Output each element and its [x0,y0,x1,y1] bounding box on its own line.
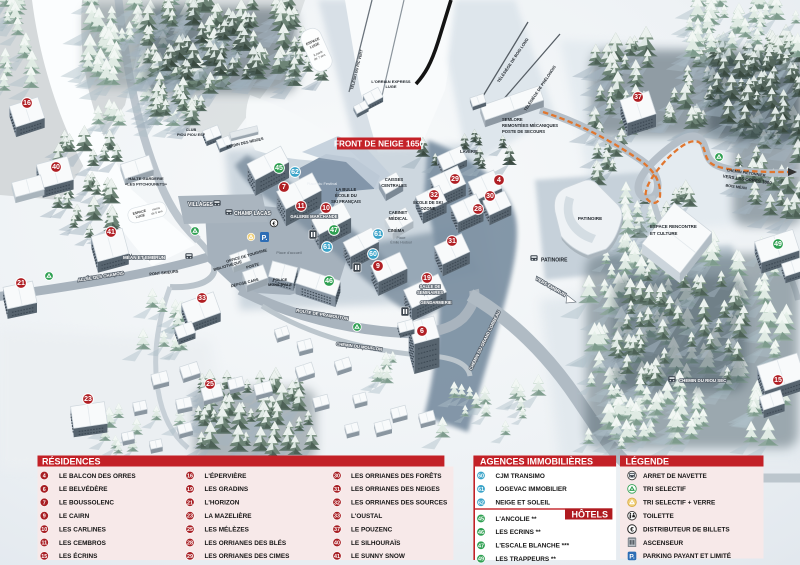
svg-text:LAVERIE: LAVERIE [460,149,478,154]
svg-text:LOGEVAC IMMOBILIER: LOGEVAC IMMOBILIER [496,486,568,493]
svg-text:60: 60 [478,474,484,480]
svg-text:LE SUNNY SNOW: LE SUNNY SNOW [351,553,406,560]
svg-text:Place du Festival: Place du Festival [307,181,338,186]
svg-text:LES ECRINS **: LES ECRINS ** [496,529,542,536]
svg-text:32: 32 [430,192,438,199]
svg-text:CJM TRANSIMO: CJM TRANSIMO [496,473,545,480]
svg-text:ÉCOLE DU: ÉCOLE DU [335,193,357,198]
svg-text:LES GRADINS: LES GRADINS [205,486,249,493]
svg-text:25: 25 [206,381,214,388]
svg-text:TOILETTE: TOILETTE [643,513,675,520]
svg-text:30: 30 [334,474,340,480]
svg-text:11: 11 [41,541,47,547]
svg-text:62: 62 [478,500,484,506]
svg-text:23: 23 [187,514,193,520]
svg-text:15: 15 [774,377,782,384]
svg-text:31: 31 [334,487,340,493]
svg-text:7: 7 [43,500,46,506]
svg-text:PIOU PIOU ESF: PIOU PIOU ESF [177,133,206,137]
svg-text:L'OUSTAL: L'OUSTAL [351,513,382,520]
svg-text:19: 19 [187,487,193,493]
svg-text:4: 4 [497,177,501,184]
svg-text:30: 30 [486,193,494,200]
svg-text:4: 4 [43,474,46,480]
svg-text:ARRET DE NAVETTE: ARRET DE NAVETTE [643,473,708,480]
svg-text:L'ÉPERVIÈRE: L'ÉPERVIÈRE [205,471,248,480]
svg-text:L'HORIZON: L'HORIZON [205,500,240,507]
svg-text:60: 60 [369,251,377,258]
svg-text:CHAMP LACAS: CHAMP LACAS [234,211,272,217]
svg-text:PARKING PAYANT ET LIMITÉ: PARKING PAYANT ET LIMITÉ [643,551,732,560]
svg-text:33: 33 [198,295,206,302]
svg-text:9: 9 [376,263,380,270]
svg-text:TRI SELECTIF + VERRE: TRI SELECTIF + VERRE [643,500,716,507]
svg-text:61: 61 [323,244,331,251]
svg-text:6: 6 [420,328,424,335]
svg-text:LE SILHOURAÏS: LE SILHOURAÏS [351,539,401,547]
svg-text:Place d'accueil: Place d'accueil [276,251,301,255]
svg-text:GENDARMERIE: GENDARMERIE [420,300,452,305]
svg-text:LA BULLE: LA BULLE [336,187,357,192]
svg-text:ÉCOLE DE SKI: ÉCOLE DE SKI [413,200,443,205]
svg-text:SEMLORE: SEMLORE [502,117,523,122]
svg-text:LES ORRIANES DES CIMES: LES ORRIANES DES CIMES [205,553,291,560]
svg-text:CAISSES: CAISSES [385,177,404,182]
svg-text:LES CEMBROS: LES CEMBROS [59,540,107,547]
svg-text:CENTRALES: CENTRALES [381,183,407,188]
svg-text:23: 23 [84,396,92,403]
svg-text:MÉDICAL: MÉDICAL [388,216,408,221]
svg-text:«LES PITCHOUNETS»: «LES PITCHOUNETS» [125,182,168,187]
svg-text:FRONT DE NEIGE 1650: FRONT DE NEIGE 1650 [334,140,425,149]
svg-text:LES ORRIANES DES BLÉS: LES ORRIANES DES BLÉS [205,538,287,547]
svg-text:LES TRAPPEURS **: LES TRAPPEURS ** [496,556,557,563]
svg-text:16: 16 [187,474,193,480]
svg-text:15: 15 [41,554,47,560]
svg-text:33: 33 [334,514,340,520]
svg-text:47: 47 [330,227,338,234]
svg-text:PATINOIRE: PATINOIRE [578,216,602,221]
svg-text:CINÉMA: CINÉMA [388,228,405,233]
svg-text:€: € [630,527,634,534]
svg-text:21: 21 [187,500,193,506]
svg-text:LES MÉLÈZES: LES MÉLÈZES [205,524,250,533]
svg-text:37: 37 [334,527,340,533]
svg-text:LE POUZENC: LE POUZENC [351,526,393,533]
svg-text:MÉAN ET EMBRUN: MÉAN ET EMBRUN [123,253,166,260]
svg-text:32: 32 [334,500,340,506]
svg-text:LA MAZELIÈRE: LA MAZELIÈRE [205,511,253,520]
svg-text:11: 11 [297,203,305,210]
svg-text:28: 28 [187,541,193,547]
svg-text:€: € [272,222,275,228]
svg-text:25: 25 [187,527,193,533]
svg-text:SÉMINAIRES: SÉMINAIRES [417,290,443,295]
svg-text:LÉGENDE: LÉGENDE [626,456,670,466]
svg-text:LE BOUSSOLENC: LE BOUSSOLENC [59,500,114,507]
svg-text:POSTE DE SECOURS: POSTE DE SECOURS [502,129,545,134]
svg-text:L'ANCOLIE **: L'ANCOLIE ** [496,516,537,523]
svg-text:Place: Place [397,236,406,240]
svg-text:19: 19 [423,275,431,282]
svg-text:SALLE DE: SALLE DE [420,284,441,289]
svg-text:6: 6 [43,487,46,493]
svg-text:16: 16 [23,100,31,107]
svg-text:TRI SELECTIF: TRI SELECTIF [643,486,686,493]
svg-text:41: 41 [334,554,340,560]
svg-text:CHEMIN DU RIOU SEC: CHEMIN DU RIOU SEC [679,378,727,383]
svg-text:LES ORRIANES DES SOURCES: LES ORRIANES DES SOURCES [351,500,448,507]
svg-text:37: 37 [634,94,642,101]
svg-text:LE BALCON DES ORRES: LE BALCON DES ORRES [59,473,136,480]
svg-text:LES ORRIANES DES FORÊTS: LES ORRIANES DES FORÊTS [351,471,442,480]
svg-text:MUNICIPALE: MUNICIPALE [268,282,292,287]
svg-text:RÉSIDENCES: RÉSIDENCES [42,456,101,466]
svg-text:40: 40 [334,541,340,547]
svg-text:P.: P. [262,235,268,242]
svg-text:LUGE: LUGE [385,84,396,89]
svg-text:SKI FRANÇAIS: SKI FRANÇAIS [331,199,361,204]
svg-text:NEIGE ET SOLEIL: NEIGE ET SOLEIL [496,500,551,507]
svg-text:CLUB: CLUB [186,128,197,132]
svg-text:LES ÉCRINS: LES ÉCRINS [59,551,98,560]
svg-text:LE BELVÉDÈRE: LE BELVÉDÈRE [59,484,108,493]
svg-text:Émile Hodoul: Émile Hodoul [390,240,412,245]
svg-text:62: 62 [291,169,299,176]
svg-text:ASCENSEUR: ASCENSEUR [643,540,684,547]
svg-text:29: 29 [187,554,193,560]
svg-text:40: 40 [52,164,60,171]
svg-text:LE CAIRN: LE CAIRN [59,513,90,520]
svg-text:L'ESCALE BLANCHE ***: L'ESCALE BLANCHE *** [496,543,570,550]
svg-text:REMONTÉES MÉCANIQUES: REMONTÉES MÉCANIQUES [502,123,558,128]
svg-text:7: 7 [282,184,286,191]
svg-text:HALTE GARDERIE: HALTE GARDERIE [128,176,164,181]
svg-text:31: 31 [448,238,456,245]
svg-text:45: 45 [275,165,283,172]
svg-text:ESPACE RENCONTRE: ESPACE RENCONTRE [650,224,697,229]
svg-text:10: 10 [41,527,47,533]
svg-text:DISTRIBUTEUR DE BILLETS: DISTRIBUTEUR DE BILLETS [643,526,730,533]
svg-text:ET CULTURE: ET CULTURE [650,231,678,236]
svg-text:VILLAGES: VILLAGES [188,202,214,208]
svg-text:28: 28 [474,206,482,213]
svg-text:10: 10 [322,205,330,212]
svg-text:LES CARLINES: LES CARLINES [59,526,107,533]
svg-text:9: 9 [43,514,46,520]
svg-text:49: 49 [774,241,782,248]
svg-text:47: 47 [478,543,484,549]
svg-text:OZONE: OZONE [421,206,436,211]
svg-text:HÔTELS: HÔTELS [571,508,608,519]
svg-text:GALERIE MARCHANDE: GALERIE MARCHANDE [290,214,337,219]
svg-text:21: 21 [17,280,25,287]
svg-text:61: 61 [374,231,382,238]
svg-text:61: 61 [478,487,484,493]
svg-text:41: 41 [107,229,115,236]
svg-text:CABINET: CABINET [389,210,408,215]
svg-text:45: 45 [478,517,484,523]
svg-text:29: 29 [451,176,459,183]
svg-text:46: 46 [325,278,333,285]
svg-text:LES ORRIANES DES NEIGES: LES ORRIANES DES NEIGES [351,486,441,493]
svg-text:P.: P. [629,553,635,560]
svg-text:49: 49 [478,557,484,563]
svg-text:46: 46 [478,530,484,536]
svg-text:PATINOIRE: PATINOIRE [541,258,568,264]
svg-text:AGENCES IMMOBILIÈRES: AGENCES IMMOBILIÈRES [480,456,593,466]
